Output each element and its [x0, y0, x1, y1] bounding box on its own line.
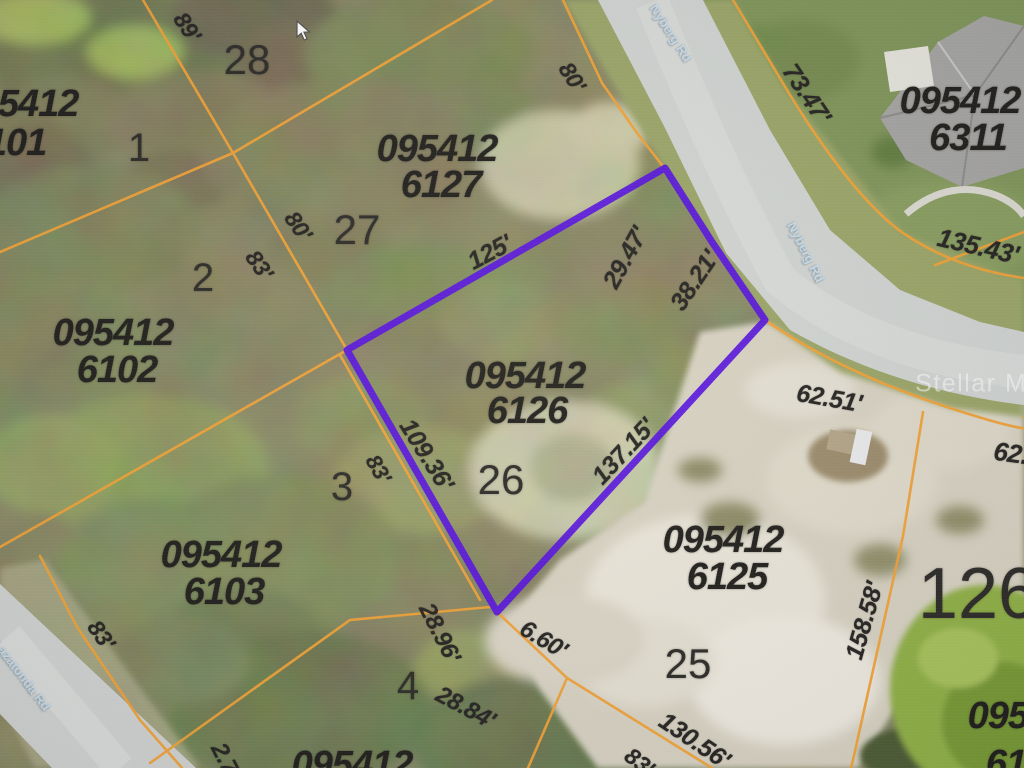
aerial-photo	[0, 0, 1024, 768]
aerial-parcel-map[interactable]: 0954126101095412612709541263110954126102…	[0, 0, 1024, 768]
